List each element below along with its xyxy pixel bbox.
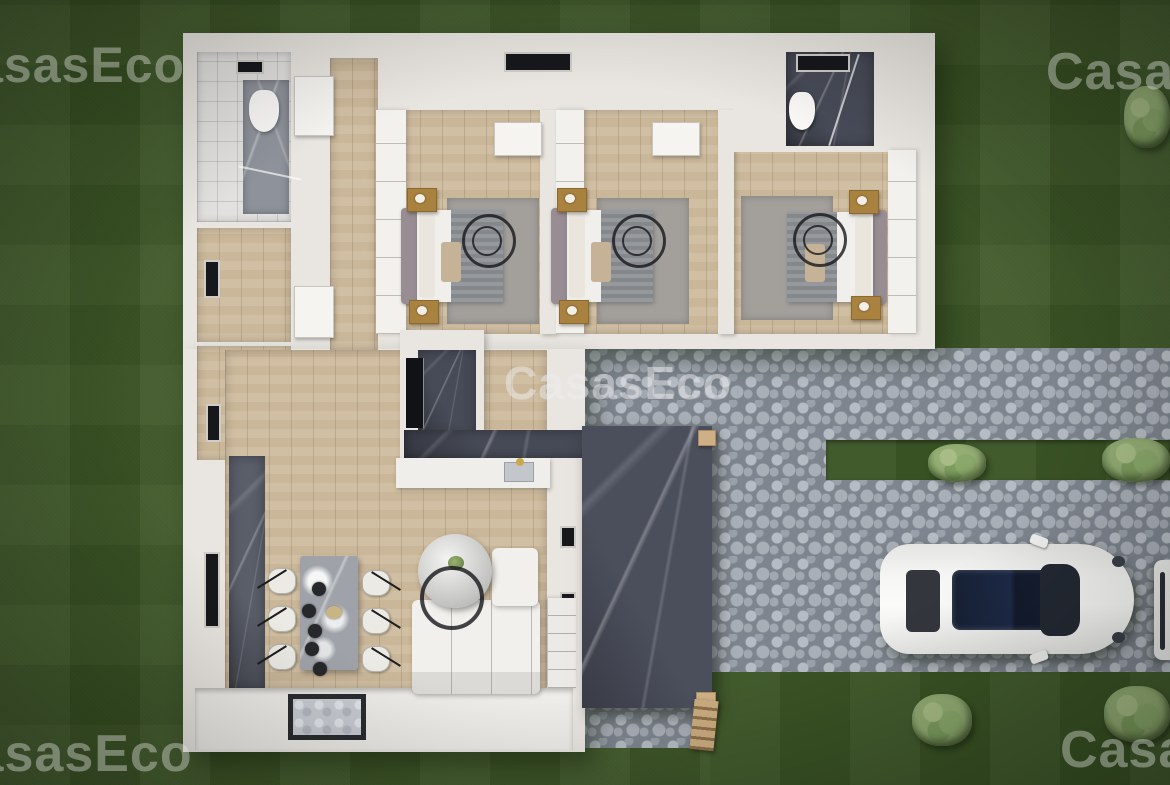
- car-windshield: [1040, 564, 1080, 636]
- bed1-nightstand-bottom: [409, 300, 439, 324]
- bed2-throw: [591, 242, 611, 282]
- bed3-pillows: [855, 216, 871, 298]
- outdoor-tv: [406, 358, 424, 428]
- pergola-roof: [582, 426, 712, 708]
- dinner-plate: [308, 624, 322, 638]
- second-car-window-stripe: [1160, 572, 1165, 650]
- bed1-pillows: [419, 214, 435, 298]
- tree-top-right: [1124, 86, 1170, 148]
- bathroom-window: [236, 60, 264, 74]
- bed3-nightstand-bottom: [851, 296, 881, 320]
- serving-dish: [326, 606, 342, 619]
- ensuite-toilet: [789, 92, 815, 130]
- ceiling-fan-2-inner: [622, 226, 652, 256]
- aerial-render-scene: CasasEco CasasEco CasasEco CasasEco Casa…: [0, 0, 1170, 785]
- ensuite-skylight: [796, 54, 850, 72]
- dining-chair: [268, 606, 296, 632]
- sofa-chaise: [492, 548, 538, 606]
- toilet: [249, 90, 279, 132]
- dining-chair: [362, 646, 390, 672]
- car-headlight-bottom: [1112, 632, 1125, 643]
- bed2-nightstand-bottom: [559, 300, 589, 324]
- living-right-window-1: [560, 526, 576, 548]
- dining-chair: [268, 644, 296, 670]
- tv-shelf-unit: [548, 598, 576, 688]
- dining-chair: [362, 608, 390, 634]
- ring-pendant-lamp: [420, 566, 484, 630]
- bed2-nightstand-top: [557, 188, 587, 212]
- watermark-top-left: CasasEco: [0, 36, 185, 94]
- bed3-headboard: [871, 210, 887, 304]
- pergola-post-top: [698, 430, 716, 446]
- bed1-headboard: [401, 208, 417, 304]
- bed3-nightstand-top: [849, 190, 879, 214]
- dinner-plate: [305, 642, 319, 656]
- bed2-pillows: [569, 214, 585, 298]
- doormat: [288, 694, 366, 740]
- watermark-bottom-left: CasasEco: [0, 724, 193, 784]
- car-rear-window: [906, 570, 940, 632]
- dinner-plate: [302, 604, 316, 618]
- dinner-plate: [312, 582, 326, 596]
- hallway-floor: [330, 58, 378, 350]
- bedroom1-door: [494, 122, 542, 156]
- hallway-skylight: [504, 52, 572, 72]
- kitchen-faucet: [516, 458, 524, 466]
- dining-chair: [362, 570, 390, 596]
- dining-chair: [268, 568, 296, 594]
- bedroom-partition-2: [718, 110, 734, 334]
- kitchen-side-counter: [229, 456, 265, 690]
- dinner-plate: [313, 662, 327, 676]
- garden-bush-2: [1104, 686, 1170, 742]
- closet-a-door: [294, 76, 334, 136]
- bedroom3-wardrobe: [888, 150, 916, 334]
- ceiling-fan-1-inner: [472, 226, 502, 256]
- ceiling-fan-3-inner: [803, 225, 833, 255]
- hedge-bush-2: [1102, 438, 1170, 482]
- bed2-headboard: [551, 208, 567, 304]
- closet-b-door: [294, 286, 334, 338]
- bed1-throw: [441, 242, 461, 282]
- kitchen-wall-face: [404, 430, 602, 458]
- car-headlight-top: [1112, 556, 1125, 567]
- closet-b-window: [206, 404, 221, 442]
- porch-slab: [195, 688, 573, 750]
- garden-bush-1: [912, 694, 972, 746]
- closet-a-window: [204, 260, 220, 298]
- entry-porch-floor: [418, 350, 476, 436]
- hedge-bush-1: [928, 444, 986, 482]
- bed1-nightstand-top: [407, 188, 437, 212]
- living-left-window: [204, 552, 220, 628]
- bedroom2-door: [652, 122, 700, 156]
